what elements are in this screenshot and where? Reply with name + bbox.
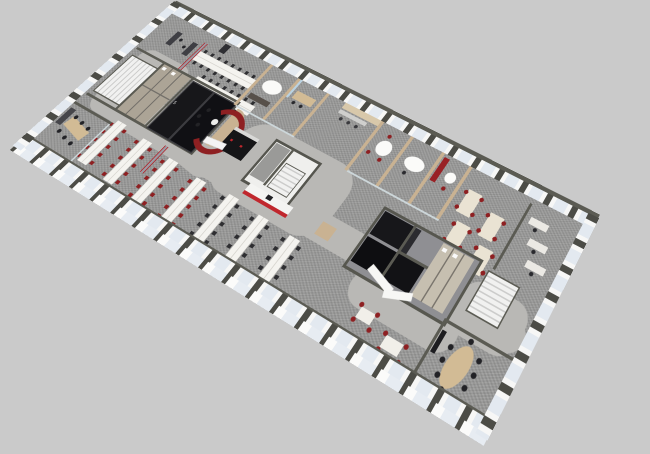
floor-plan: 5 <box>28 10 587 423</box>
render-canvas: 5 <box>0 0 650 454</box>
